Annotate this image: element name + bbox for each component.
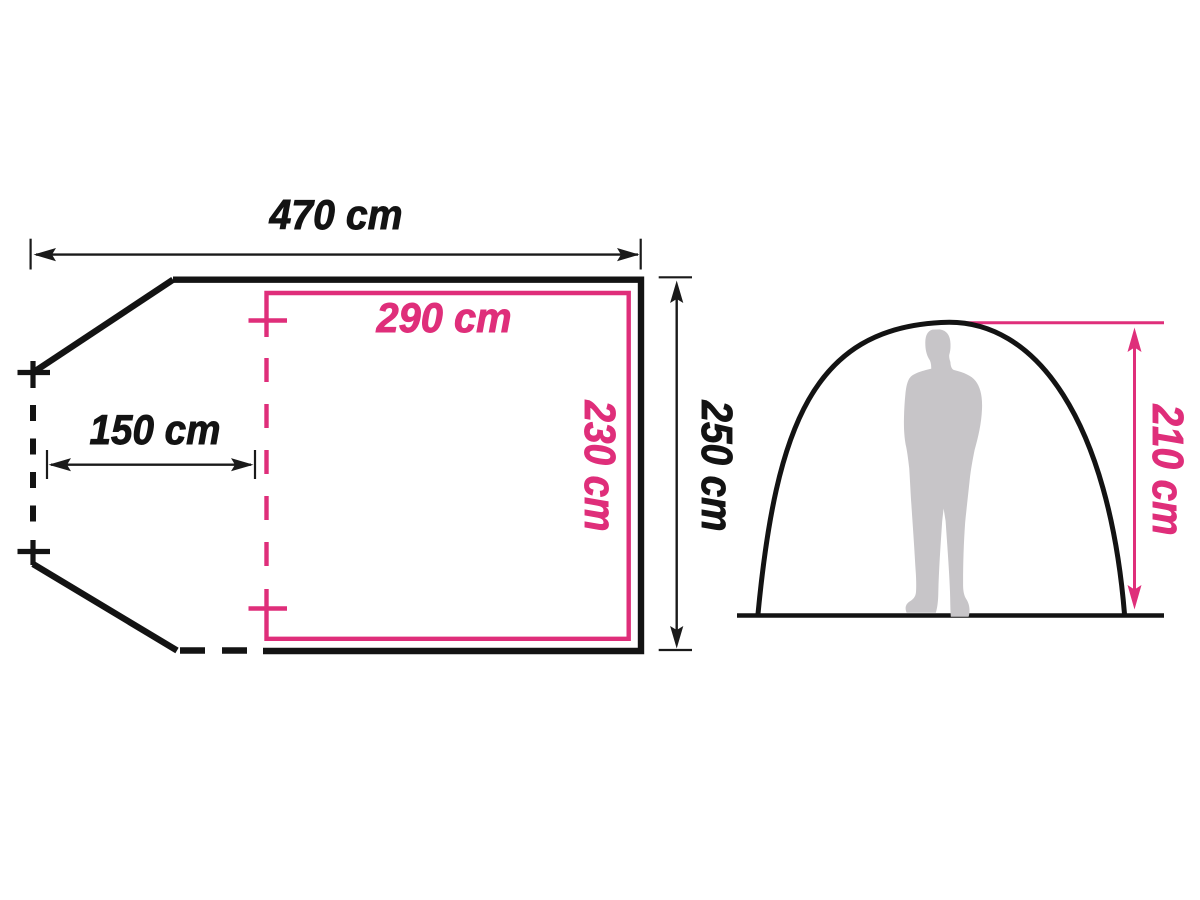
svg-text:290 cm: 290 cm <box>376 294 512 341</box>
svg-text:470 cm: 470 cm <box>269 191 403 238</box>
svg-text:230 cm: 230 cm <box>575 400 624 532</box>
svg-text:210 cm: 210 cm <box>1143 404 1192 536</box>
svg-text:250 cm: 250 cm <box>692 400 741 532</box>
svg-text:150 cm: 150 cm <box>90 406 221 453</box>
